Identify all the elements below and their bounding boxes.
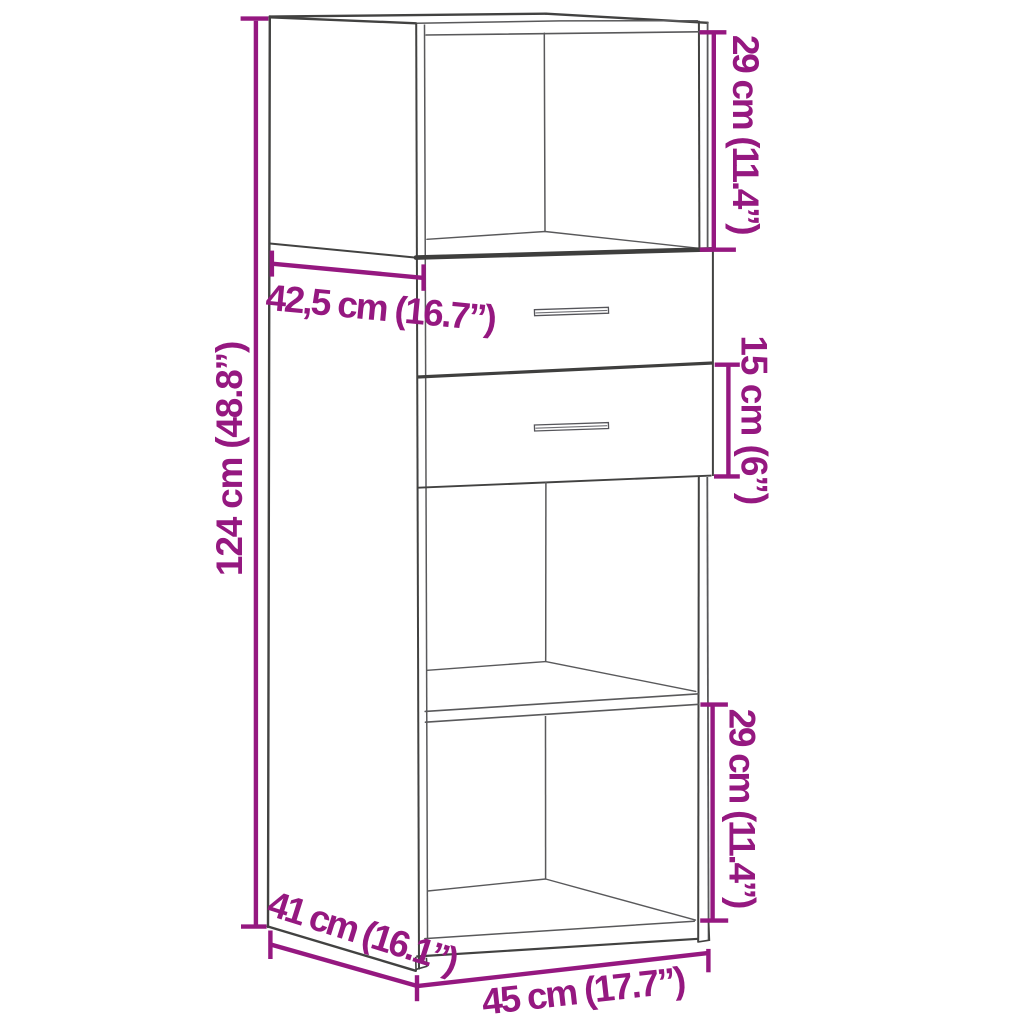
svg-text:29 cm (11.4”): 29 cm (11.4”) xyxy=(722,709,763,908)
svg-text:124 cm (48.8”): 124 cm (48.8”) xyxy=(209,342,250,576)
svg-text:29 cm (11.4”): 29 cm (11.4”) xyxy=(725,35,766,234)
svg-text:15 cm (6”): 15 cm (6”) xyxy=(734,335,775,504)
